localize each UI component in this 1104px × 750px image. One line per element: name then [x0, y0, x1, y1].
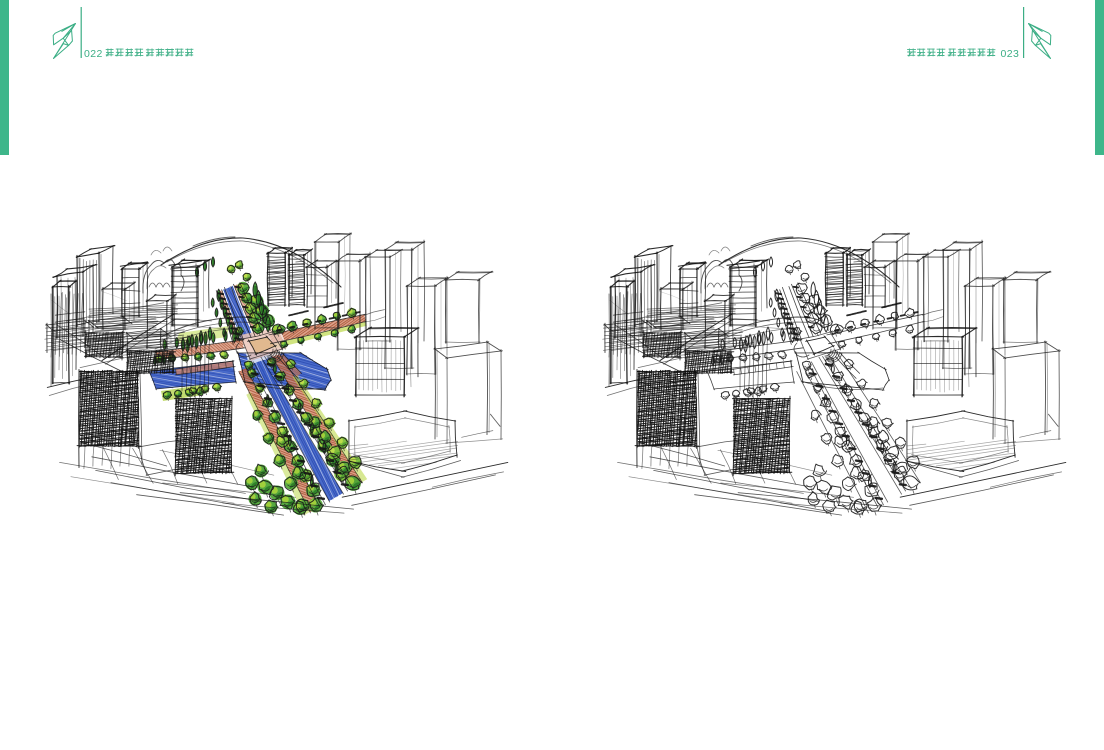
svg-text:023: 023: [1001, 48, 1020, 60]
svg-text:022: 022: [84, 48, 103, 60]
